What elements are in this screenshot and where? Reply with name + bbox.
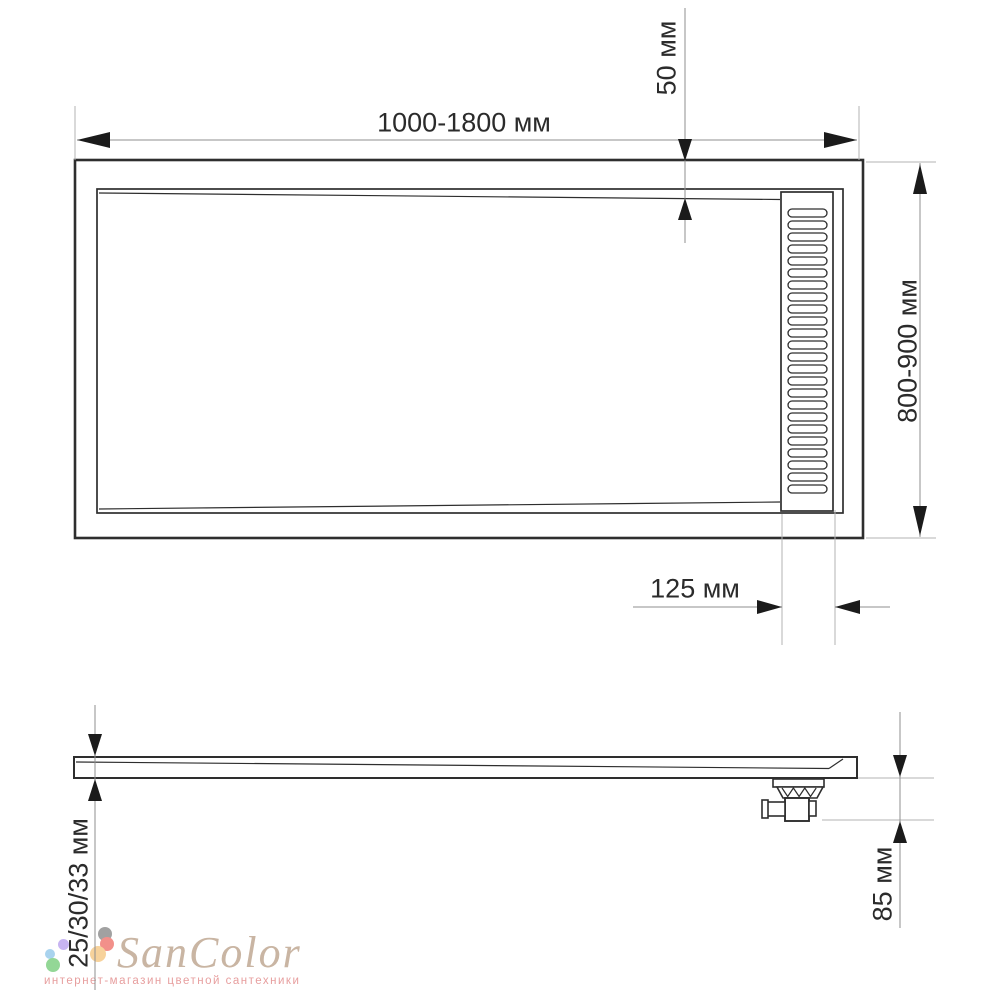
arrow-right-icon [824,132,857,148]
arrow-left-icon [835,600,860,614]
grille-slot [788,257,827,265]
arrow-up-icon [88,779,102,801]
grille-slot [788,281,827,289]
drain-trap [762,779,824,821]
trap-body [785,798,809,821]
grille-slot [788,473,827,481]
arrow-up-icon [893,821,907,843]
dim-drain-side-offset-label: 125 мм [650,574,740,605]
grille-slot [788,233,827,241]
grille-slot [788,221,827,229]
grille-slot [788,377,827,385]
dim-depth-label: 800-900 мм [893,279,924,423]
dim-drain-offset-label: 50 мм [652,21,683,96]
arrow-right-icon [757,600,782,614]
grille-slot [788,305,827,313]
arrow-down-icon [893,755,907,777]
grille-slot [788,425,827,433]
trap-side-cap [809,801,816,816]
grille-slot [788,461,827,469]
grille-slot [788,209,827,217]
tray-basin [97,189,843,513]
grille-slot [788,365,827,373]
arrow-up-icon [913,164,927,194]
grille-slot [788,389,827,397]
grille-slot [788,269,827,277]
trap-flange [773,779,824,787]
arrow-down-icon [678,139,692,161]
drawing-canvas [0,0,1000,1000]
dim-width-label: 1000-1800 мм [377,108,551,139]
grille-slot [788,245,827,253]
shower-tray-dimension-drawing: SanColor интернет-магазин цветной сантех… [0,0,1000,1000]
grille-slot [788,317,827,325]
dim-thickness-label: 25/30/33 мм [64,818,95,968]
grille-slot [788,437,827,445]
grille-slot [788,329,827,337]
top-view [75,160,863,538]
grille-slot [788,449,827,457]
grille-slot [788,353,827,361]
grille-slot [788,293,827,301]
trap-outlet-pipe [766,802,785,816]
grille-slot [788,485,827,493]
trap-outlet-cap [762,800,768,818]
arrow-down-icon [913,506,927,536]
arrow-left-icon [77,132,110,148]
grille-slot [788,413,827,421]
arrow-down-icon [88,734,102,756]
grille-slot [788,341,827,349]
grille-slot [788,401,827,409]
dim-trap-height-label: 85 мм [868,847,899,922]
side-view [74,757,857,821]
